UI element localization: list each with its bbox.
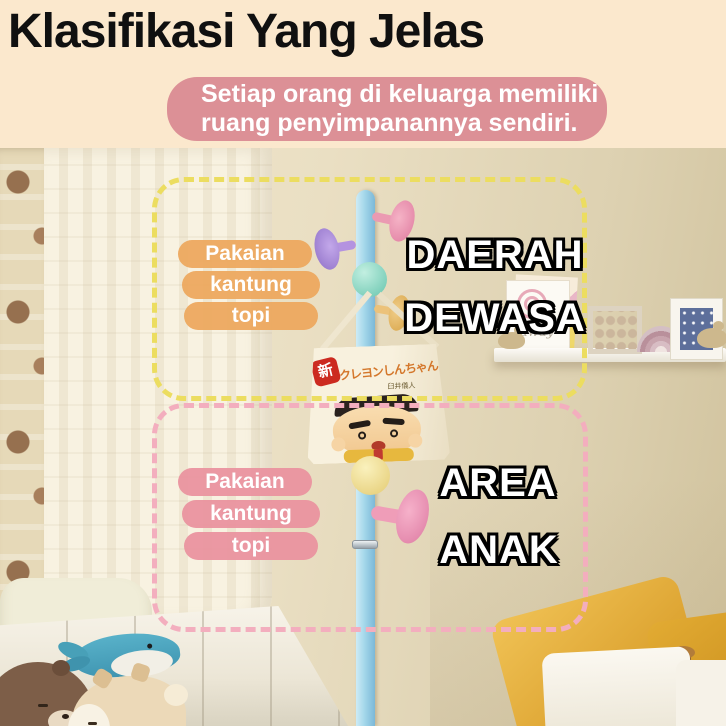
zone-title-daerah: DAERAH [403,233,587,278]
badge-kantung-adult: kantung [182,271,320,299]
whale-eye [147,643,152,648]
bird-head [713,321,724,331]
badge-kantung-kids: kantung [182,500,320,528]
subtitle-line-1: Setiap orang di keluarga memiliki [201,80,607,109]
subtitle-banner: Setiap orang di keluarga memiliki ruang … [167,77,607,141]
bear-nose [62,714,69,719]
bird-figurine-icon [697,328,726,348]
abacus-toy-icon [588,306,642,354]
subtitle-line-2: ruang penyimpanannya sendiri. [201,109,607,138]
zone-title-anak: ANAK [408,528,590,573]
badge-pakaian-kids: Pakaian [178,468,312,496]
badge-topi-adult: topi [184,302,318,330]
zone-title-area: AREA [408,461,588,506]
page-title: Klasifikasi Yang Jelas [8,4,568,59]
shiba-eye [88,722,97,725]
shiba-tail [164,684,188,706]
product-marketing-image: away 新 クレヨンしんちゃん 臼井儀人 [0,0,726,726]
zone-title-dewasa: DEWASA [400,296,590,341]
white-pillow [676,660,726,726]
badge-pakaian-adult: Pakaian [178,240,312,268]
bear-ear [52,660,70,676]
badge-topi-kids: topi [184,532,318,560]
bear-eye [38,704,48,707]
white-pillow [542,646,695,726]
